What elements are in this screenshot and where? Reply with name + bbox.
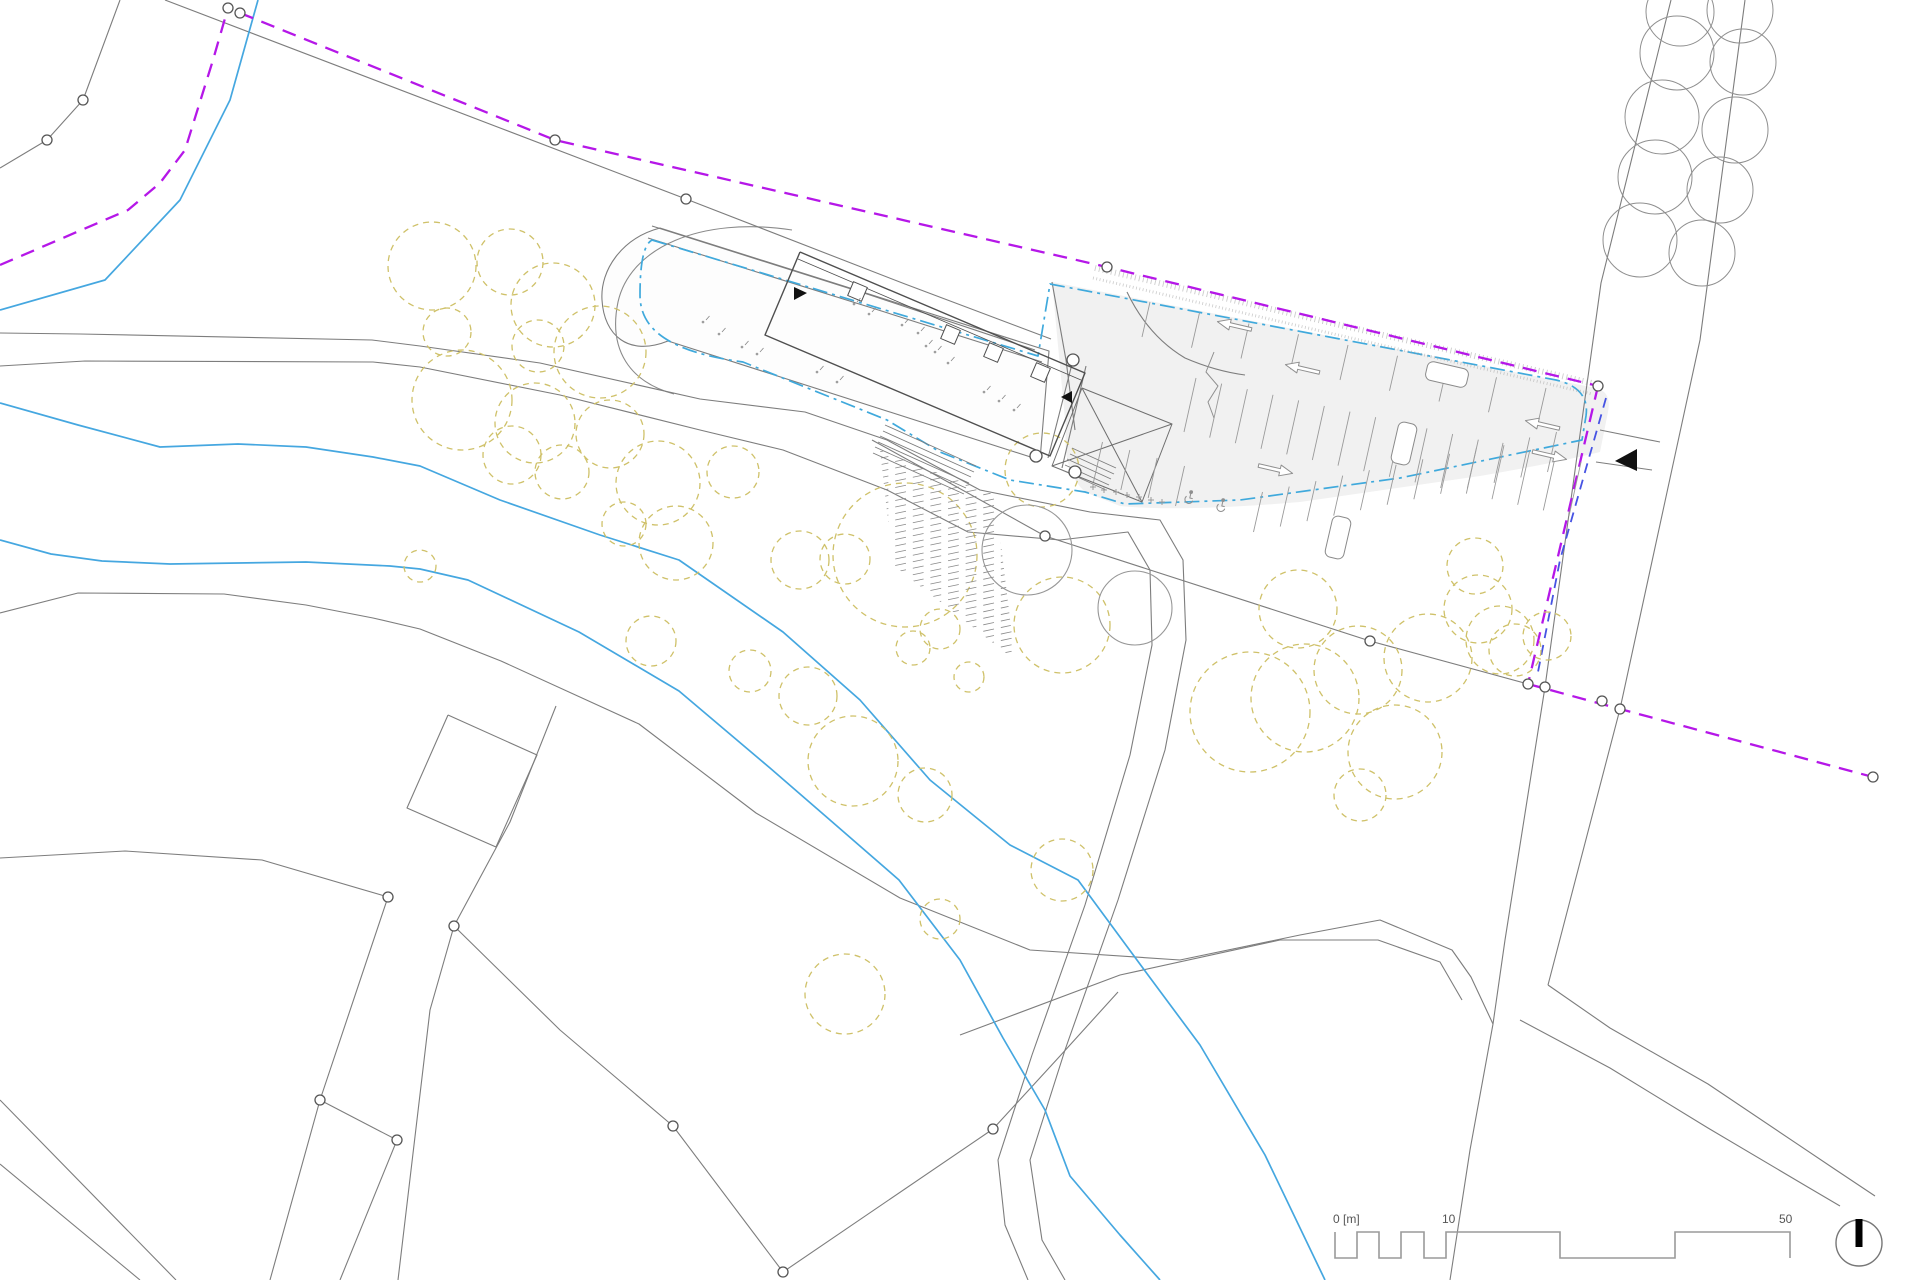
scale-bar bbox=[1335, 1232, 1790, 1258]
site-plan-canvas bbox=[0, 0, 1920, 1280]
survey-nodes bbox=[42, 3, 1878, 1277]
scale-bar-label-ten: 10 bbox=[1442, 1213, 1455, 1225]
scale-bar-label-zero: 0 [m] bbox=[1333, 1213, 1360, 1225]
parcel-fills bbox=[1052, 282, 1609, 508]
survey-lines bbox=[0, 0, 1875, 1280]
tree-row-avenue bbox=[1603, 0, 1776, 286]
stream-lines bbox=[0, 0, 1325, 1280]
trees-existing-solid bbox=[982, 505, 1172, 645]
scale-bar-label-fifty: 50 bbox=[1779, 1213, 1792, 1225]
hatch-slope bbox=[860, 393, 1035, 853]
site-plan-page: 0 [m] 10 50 bbox=[0, 0, 1920, 1280]
north-arrow-icon bbox=[1836, 1219, 1882, 1266]
